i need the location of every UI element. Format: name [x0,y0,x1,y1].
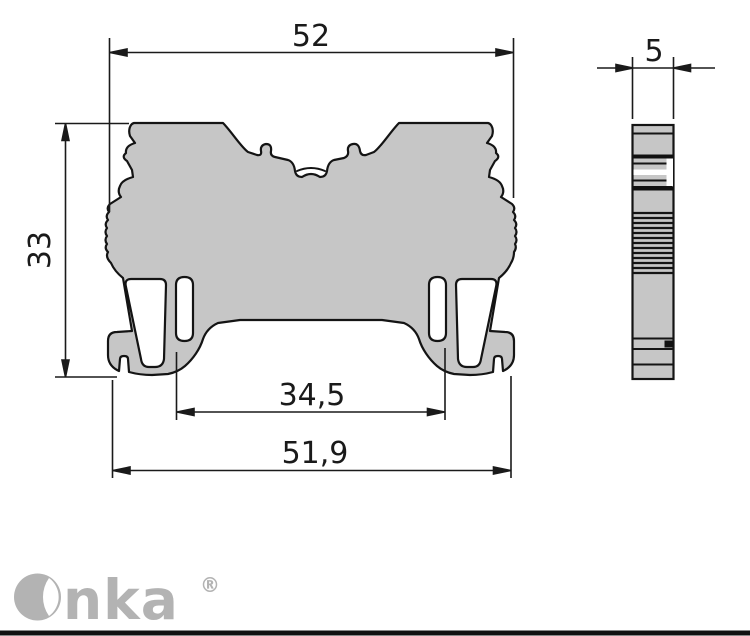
arrowhead-up [62,124,69,141]
arrowhead-left [110,49,127,56]
dimension-inner-width: 34,5 [177,348,446,420]
arrowhead-left [616,65,633,72]
front-center-notch-detail [297,168,325,171]
arrowhead-left [177,409,194,416]
front-view [106,123,517,375]
arrowhead-right [674,65,691,72]
registered-trademark-icon: ® [200,573,220,597]
technical-drawing-page: 52 33 34,5 51,9 5 [0,0,750,636]
arrowhead-right [428,409,445,416]
arrowhead-right [496,49,513,56]
dimension-thickness: 5 [597,34,715,119]
dimension-label-top-width: 52 [292,19,330,54]
side-white-gap-right [667,159,674,187]
arrowhead-down [62,360,69,377]
front-profile-outline [106,123,517,375]
dimension-label-inner-width: 34,5 [279,378,346,413]
side-latch-square [665,341,674,348]
side-white-gap-mid [634,170,667,176]
side-view [633,125,674,379]
arrowhead-left [113,467,130,474]
logo-wordmark: nka [63,568,179,632]
dimension-label-height: 33 [23,231,58,269]
arrowhead-right [494,467,511,474]
terminal-block-drawing: 52 33 34,5 51,9 5 [0,0,750,636]
side-hatch-lines [633,213,674,273]
dimension-label-thickness: 5 [644,34,663,69]
footer-divider-bar [0,631,750,636]
brand-logo: nka ® [14,568,220,632]
side-black-band-upper [634,155,673,159]
dimension-label-bottom-width: 51,9 [282,436,349,471]
side-black-band-lower [634,186,673,191]
